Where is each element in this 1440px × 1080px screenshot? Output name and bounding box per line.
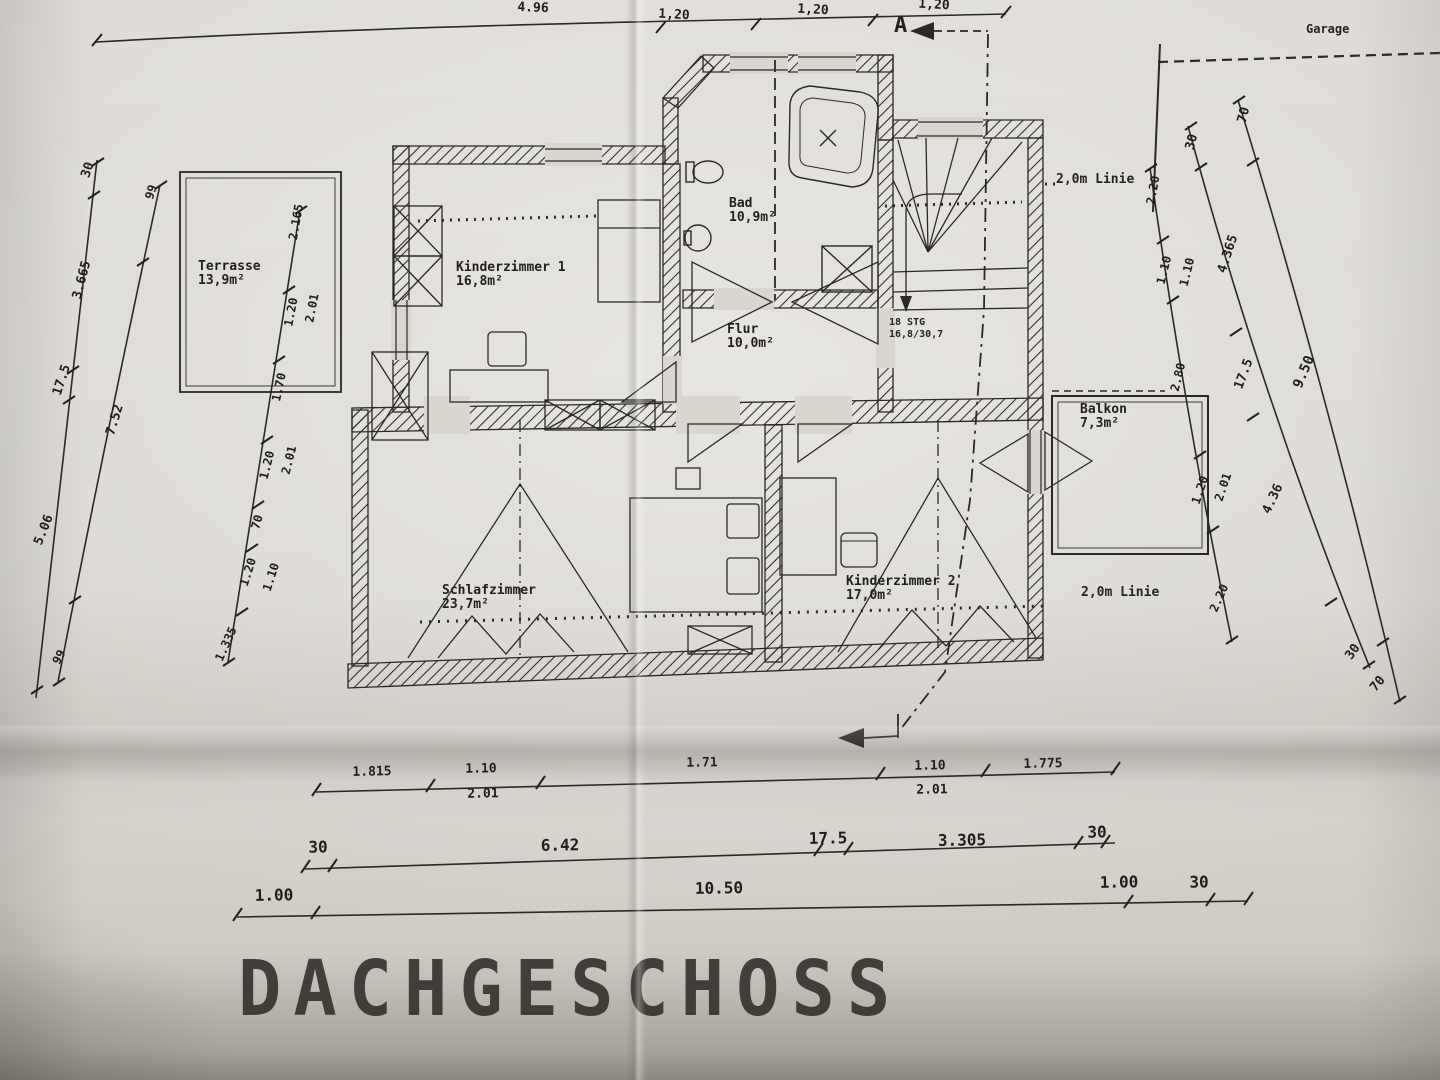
dimension-label: 1.71 — [686, 755, 718, 771]
room-label: Schlafzimmer23,7m² — [442, 584, 536, 613]
dimension-label: 30 — [308, 837, 328, 856]
dimension-label: 2.01 — [916, 782, 948, 798]
dimension-label: 1.00 — [1100, 872, 1139, 892]
headroom-line-label-top: 2,0m Linie — [1056, 172, 1134, 187]
room-name: Flur — [727, 322, 758, 337]
room-label: Kinderzimmer 217,0m² — [846, 575, 956, 604]
stairs-count: 18 STG — [889, 317, 925, 328]
room-area: 17,0m² — [846, 589, 956, 603]
stairs-annotation: 18 STG 16,8/30,7 — [889, 317, 943, 340]
room-area: 23,7m² — [442, 598, 536, 612]
dimension-label: 1.10 — [914, 758, 946, 774]
dimension-label: 1,20 — [658, 7, 690, 24]
floor-plan-photo: 4.961,201,201,2030993.66517.57.525.06992… — [0, 0, 1440, 1080]
dimension-label: 1.10 — [465, 761, 497, 777]
room-area: 13,9m² — [198, 274, 261, 288]
dimension-label: 17.5 — [809, 828, 848, 848]
dimension-label: 2.01 — [467, 786, 499, 802]
section-marker-a: A — [894, 13, 907, 38]
headroom-line-label-bottom: 2,0m Linie — [1081, 585, 1159, 600]
floor-plan-drawing — [0, 0, 1440, 1080]
room-name: Kinderzimmer 1 — [456, 260, 566, 275]
dimension-label: 30 — [1189, 872, 1209, 891]
room-name: Schlafzimmer — [442, 583, 536, 598]
dimension-label: 1,20 — [797, 2, 829, 19]
dimension-label: 1,20 — [918, 0, 950, 13]
room-label: Terrasse13,9m² — [198, 260, 261, 289]
dimension-label: 3.305 — [938, 830, 986, 850]
dimension-label: 1.815 — [352, 764, 391, 780]
stairs-rise-run: 16,8/30,7 — [889, 329, 943, 340]
room-name: Kinderzimmer 2 — [846, 574, 956, 589]
garage-label: Garage — [1306, 22, 1349, 36]
dimension-label: 4.96 — [517, 0, 549, 16]
room-name: Balkon — [1080, 402, 1127, 417]
dimension-label: 6.42 — [541, 835, 580, 855]
room-area: 10,9m² — [729, 211, 776, 225]
dimension-label: 10.50 — [695, 878, 743, 898]
room-label: Bad10,9m² — [729, 197, 776, 226]
drawing-title: DACHGESCHOSS — [238, 944, 902, 1033]
room-area: 7,3m² — [1080, 417, 1127, 431]
dimension-label: 30 — [1087, 822, 1107, 841]
room-label: Balkon7,3m² — [1080, 403, 1127, 432]
dimension-label: 1.775 — [1023, 756, 1062, 772]
room-area: 16,8m² — [456, 275, 566, 289]
room-name: Bad — [729, 196, 752, 211]
room-label: Flur10,0m² — [727, 323, 774, 352]
room-area: 10,0m² — [727, 337, 774, 351]
room-name: Terrasse — [198, 259, 261, 274]
room-label: Kinderzimmer 116,8m² — [456, 261, 566, 290]
dimension-label: 1.00 — [255, 885, 294, 905]
